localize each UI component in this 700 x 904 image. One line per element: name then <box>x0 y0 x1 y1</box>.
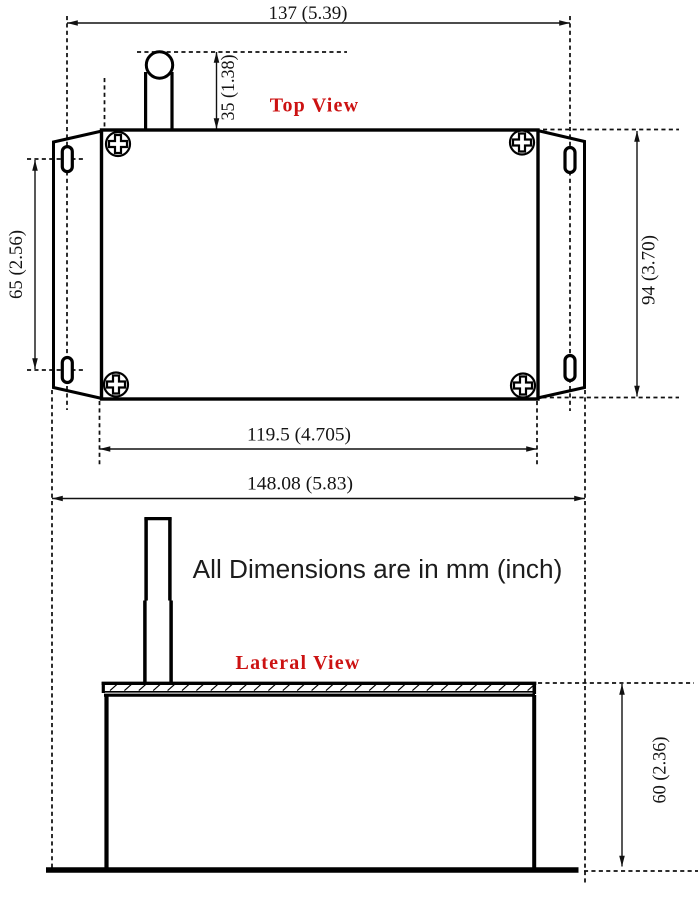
svg-text:Lateral View: Lateral View <box>236 652 361 674</box>
svg-text:65 (2.56): 65 (2.56) <box>6 230 27 299</box>
svg-text:94 (3.70): 94 (3.70) <box>639 235 660 305</box>
svg-text:60 (2.36): 60 (2.36) <box>650 737 671 804</box>
svg-text:All Dimensions are in mm (inch: All Dimensions are in mm (inch) <box>193 554 563 584</box>
svg-text:119.5 (4.705): 119.5 (4.705) <box>247 425 351 446</box>
svg-text:Top View: Top View <box>270 95 359 117</box>
svg-text:35 (1.38): 35 (1.38) <box>218 55 239 121</box>
svg-text:137 (5.39): 137 (5.39) <box>269 3 348 24</box>
svg-text:148.08 (5.83): 148.08 (5.83) <box>247 474 353 495</box>
